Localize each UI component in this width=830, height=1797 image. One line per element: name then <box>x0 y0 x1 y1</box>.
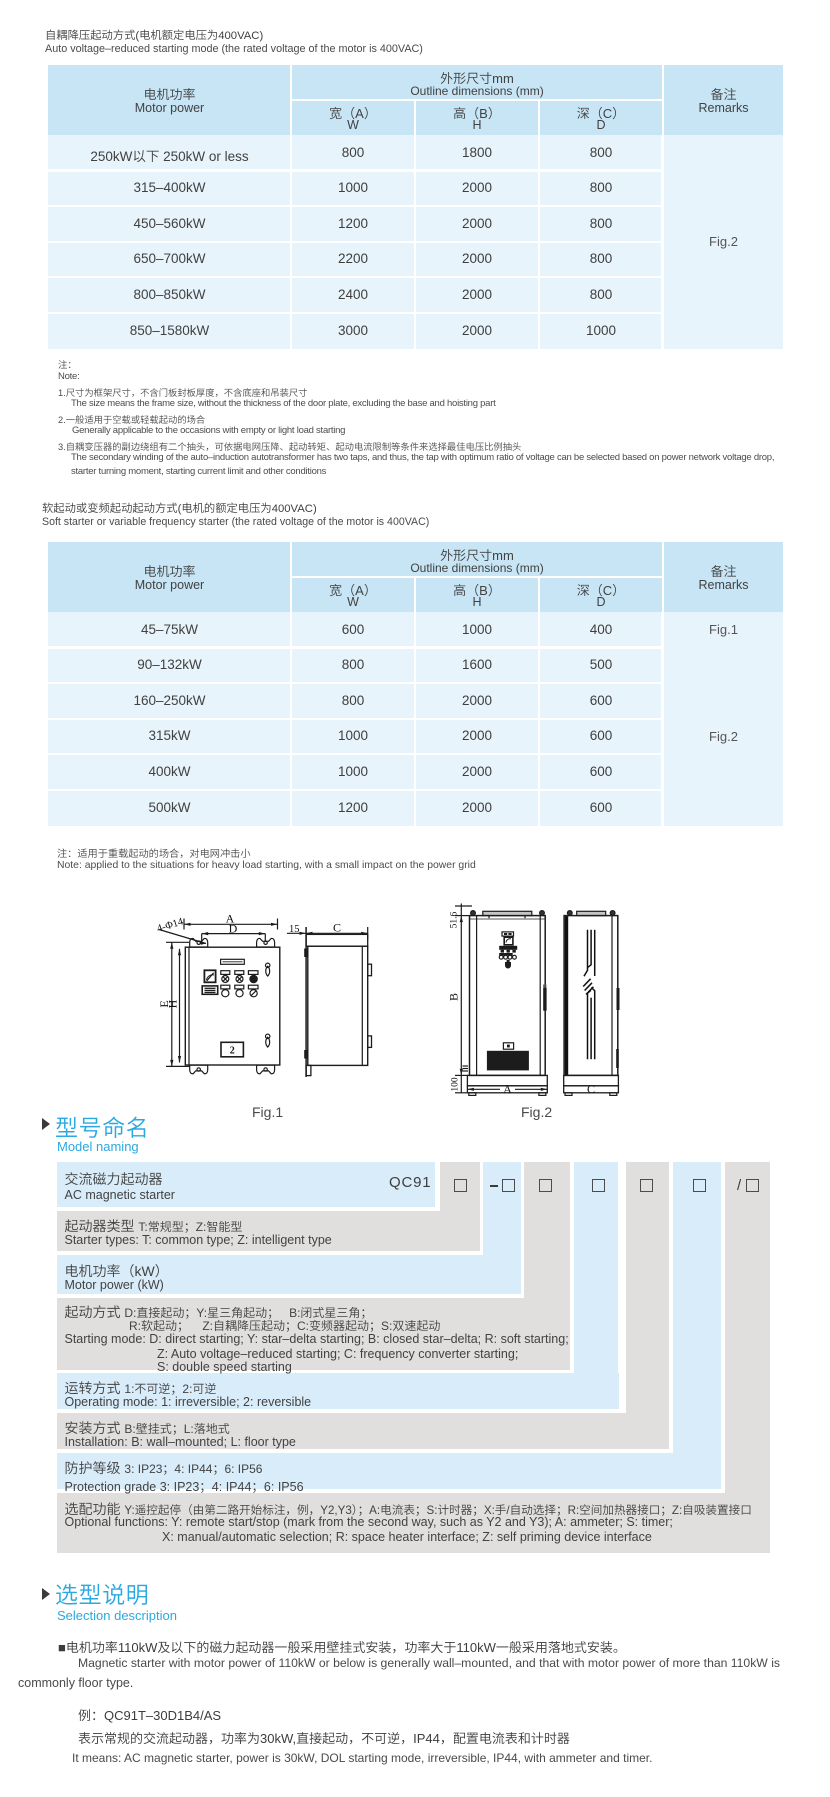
svg-text:B: B <box>447 993 461 1001</box>
svg-text:A: A <box>503 1082 512 1096</box>
svg-text:100: 100 <box>451 1077 461 1092</box>
svg-text:51.6: 51.6 <box>450 911 460 928</box>
svg-text:C: C <box>333 920 341 934</box>
svg-text:2: 2 <box>230 1046 235 1057</box>
svg-text:C: C <box>587 1082 595 1096</box>
svg-text:H: H <box>166 999 180 1008</box>
svg-text:D: D <box>229 922 238 936</box>
svg-text:4-Φ14: 4-Φ14 <box>156 916 186 935</box>
